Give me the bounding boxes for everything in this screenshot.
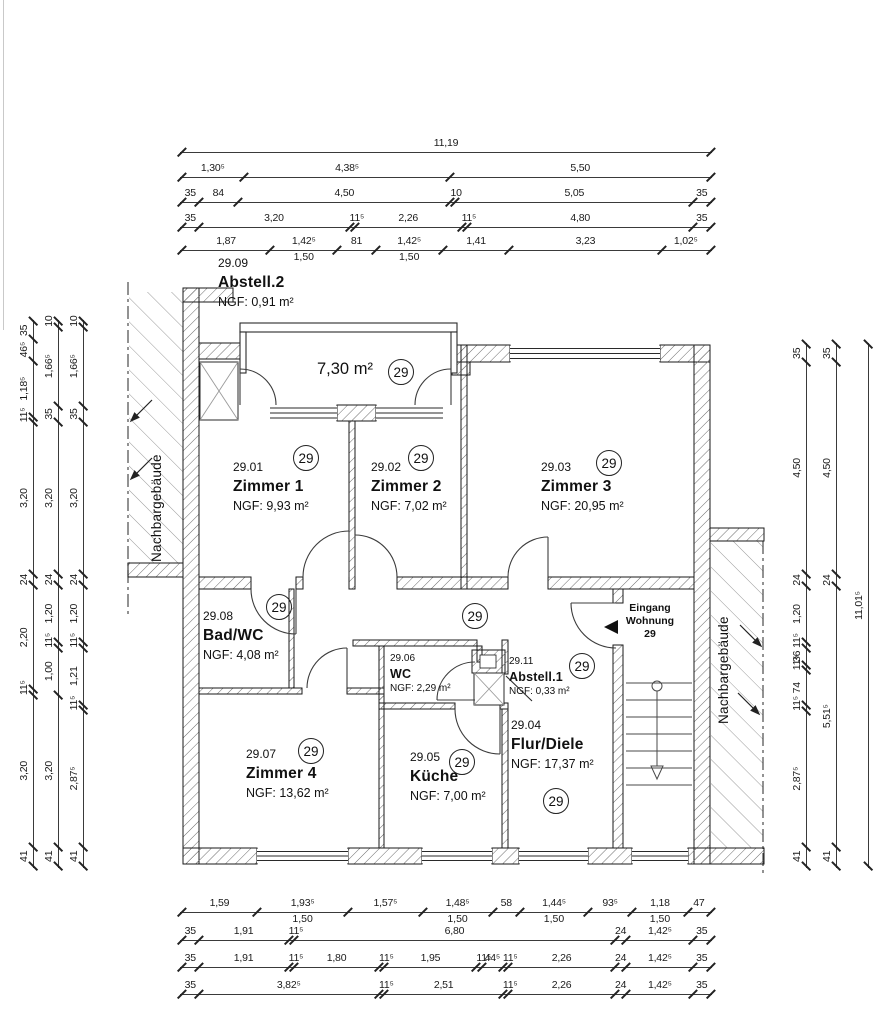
room-area: NGF: 7,02 m² xyxy=(371,499,447,513)
dim-seg: 41 xyxy=(42,847,68,866)
dim-lbl: 3,20 xyxy=(199,212,350,224)
dim-seg: 11,19 xyxy=(182,136,710,162)
dim-lbl: 4,50 xyxy=(821,362,833,575)
dim-seg: 11⁵ xyxy=(790,642,816,647)
dim-seg: 41 xyxy=(820,847,846,866)
dim-seg: 1,48⁵1,50 xyxy=(423,896,493,922)
dim-seg: 1,93⁵1,50 xyxy=(257,896,348,922)
dim-chain-top-2: 1,30⁵4,38⁵5,50 xyxy=(182,161,710,187)
dim-seg: 2,87⁵ xyxy=(790,711,816,847)
entrance-label: Eingang Wohnung 29 xyxy=(620,602,680,641)
dim-seg: 5,50 xyxy=(450,161,710,187)
dim-lbl: 3,82⁵ xyxy=(199,979,379,991)
dim-seg: 11⁵ xyxy=(42,642,68,647)
dim-lbl: 1,20 xyxy=(68,585,80,642)
room-label-abstell2: 29.09 Abstell.2 NGF: 0,91 m² xyxy=(218,257,294,309)
dim-seg: 35 xyxy=(820,345,846,362)
dim-seg: 2,26 xyxy=(508,978,615,1004)
dim-lbl: 3,20 xyxy=(43,695,55,847)
dim-seg: 4,38⁵ xyxy=(244,161,451,187)
dim-lbl: 2,87⁵ xyxy=(791,711,803,847)
dim-seg: 24 xyxy=(42,574,68,585)
dim-seg: 10 xyxy=(42,322,68,327)
dim-seg: 1,20 xyxy=(42,585,68,642)
dim-lbl: 11,19 xyxy=(182,137,710,149)
dim-lbl: 24 xyxy=(821,574,833,585)
dim-lbl: 1,42⁵ xyxy=(626,952,693,964)
room-name: Flur/Diele xyxy=(511,736,594,754)
dim-seg: 35 xyxy=(42,406,68,423)
dim-seg: 1,66⁵ xyxy=(42,327,68,406)
dim-seg: 11⁵ xyxy=(67,642,93,647)
dim-chain-top-3: 35844,50105,0535 xyxy=(182,186,710,212)
dim-seg: 81 xyxy=(337,234,375,260)
room-area: NGF: 0,33 m² xyxy=(509,686,570,698)
dim-chain-bottom-1: 1,591,93⁵1,501,57⁵1,48⁵1,50581,44⁵1,5093… xyxy=(182,896,710,922)
room-number: 29.11 xyxy=(509,656,570,668)
dim-lbl: 24 xyxy=(18,574,30,585)
dim-seg: 46⁵ xyxy=(17,339,43,361)
dim-seg: 35 xyxy=(67,406,93,423)
dim-seg: 1,80 xyxy=(294,951,379,977)
dim-seg: 2,87⁵ xyxy=(67,710,93,846)
room-label-zimmer2: 29.02 Zimmer 2 NGF: 7,02 m² xyxy=(371,461,447,513)
dim-chain-top-total: 11,19 xyxy=(182,136,710,162)
dim-seg: 24 xyxy=(17,574,43,585)
dim-seg: 3,82⁵ xyxy=(199,978,379,1004)
dim-seg: 41 xyxy=(67,847,93,866)
unit-circle-zimmer4: 29 xyxy=(298,738,324,764)
dim-lbl: 1,42⁵ xyxy=(626,979,693,991)
unit-circle-kueche: 29 xyxy=(449,749,475,775)
dim-chain-left-middle: 413,201,0011⁵1,20243,20351,66⁵10 xyxy=(42,322,68,866)
dim-lbl: 2,20 xyxy=(18,585,30,689)
dim-sub: 1,50 xyxy=(376,251,443,263)
dim-lbl: 2,26 xyxy=(508,979,615,991)
dim-seg: 35 xyxy=(790,345,816,362)
dim-seg: 3,23 xyxy=(509,234,661,260)
dim-seg: 1,91 xyxy=(199,951,289,977)
dim-seg: 10 xyxy=(67,322,93,327)
dim-lbl: 1,91 xyxy=(199,952,289,964)
dim-seg: 11⁵ xyxy=(790,665,816,670)
room-name: Zimmer 3 xyxy=(541,478,624,496)
dim-lbl: 1,48⁵ xyxy=(423,897,493,909)
dim-seg: 35 xyxy=(17,322,43,339)
room-label-badwc: 29.08 Bad/WC NGF: 4,08 m² xyxy=(203,610,279,662)
dim-seg: 4,50 xyxy=(790,362,816,575)
dim-lbl: 3,20 xyxy=(18,422,30,574)
chimney-flue xyxy=(480,655,496,668)
dim-seg: 74 xyxy=(790,670,816,705)
dim-lbl: 81 xyxy=(337,235,375,247)
dim-seg: 24 xyxy=(615,951,626,977)
dim-chain-bottom-2: 351,9111⁵6,80241,42⁵35 xyxy=(182,924,710,950)
dim-seg: 24 xyxy=(820,574,846,585)
dim-lbl: 1,44⁵ xyxy=(520,897,588,909)
dim-lbl: 4,80 xyxy=(467,212,693,224)
dim-chain-left-inner: 412,87⁵11⁵1,2111⁵1,20243,20351,66⁵10 xyxy=(67,322,93,866)
dim-seg: 35 xyxy=(693,978,710,1004)
dim-seg: 35 xyxy=(693,186,710,212)
dim-seg: 3,20 xyxy=(67,422,93,574)
dim-lbl: 1,18⁵ xyxy=(18,361,30,417)
dim-seg: 3,20 xyxy=(17,422,43,574)
room-name: WC xyxy=(390,667,451,681)
dim-lbl: 93⁵ xyxy=(588,897,632,909)
room-name: Bad/WC xyxy=(203,627,279,645)
dim-lbl: 1,20 xyxy=(43,585,55,642)
dim-seg: 11,01⁵ xyxy=(852,345,878,866)
dim-seg: 24 xyxy=(790,574,816,585)
dim-seg: 1,00 xyxy=(42,648,68,695)
room-area: NGF: 7,00 m² xyxy=(410,789,486,803)
dim-lbl: 4,50 xyxy=(238,187,450,199)
dim-lbl: 1,41 xyxy=(443,235,510,247)
dim-lbl: 1,18 xyxy=(632,897,688,909)
dim-lbl: 1,66⁵ xyxy=(68,327,80,406)
dim-seg: 1,66⁵ xyxy=(67,327,93,406)
dim-lbl: 35 xyxy=(43,406,55,423)
dim-lbl: 4,38⁵ xyxy=(244,162,451,174)
dim-seg: 41 xyxy=(17,847,43,866)
entrance-arrow-icon xyxy=(604,620,618,634)
dim-chain-bottom-4: 353,82⁵11⁵2,5111⁵2,26241,42⁵35 xyxy=(182,978,710,1004)
dim-lbl: 1,20 xyxy=(791,586,803,643)
dim-seg: 11⁵ xyxy=(17,417,43,422)
dim-seg: 36 xyxy=(790,648,816,665)
room-area: NGF: 2,29 m² xyxy=(390,683,451,695)
floor-plan-page: 11,19 1,30⁵4,38⁵5,50 35844,50105,0535 35… xyxy=(0,0,887,1024)
dim-seg: 1,44⁵1,50 xyxy=(520,896,588,922)
dim-lbl: 2,26 xyxy=(508,952,615,964)
room-label-flur: 29.04 Flur/Diele NGF: 17,37 m² xyxy=(511,719,594,771)
unit-circle-zimmer3: 29 xyxy=(596,450,622,476)
dim-lbl: 24 xyxy=(43,574,55,585)
dim-lbl: 1,87 xyxy=(182,235,270,247)
dim-seg: 35 xyxy=(693,924,710,950)
dim-seg: 44⁵ xyxy=(482,951,503,977)
dim-seg: 2,51 xyxy=(384,978,502,1004)
dim-lbl: 5,50 xyxy=(450,162,710,174)
room-area: NGF: 0,91 m² xyxy=(218,295,294,309)
dim-lbl: 1,30⁵ xyxy=(182,162,244,174)
dim-lbl: 1,02⁵ xyxy=(662,235,710,247)
room-area: NGF: 17,37 m² xyxy=(511,757,594,771)
entrance-line3: 29 xyxy=(620,628,680,641)
dim-seg: 1,18⁵ xyxy=(17,361,43,417)
dim-seg: 1,30⁵ xyxy=(182,161,244,187)
dim-lbl: 84 xyxy=(199,187,239,199)
dim-seg: 1,42⁵ xyxy=(626,924,693,950)
room-number: 29.04 xyxy=(511,719,594,733)
room-name: Zimmer 1 xyxy=(233,478,309,496)
balcony-area-label: 7,30 m² xyxy=(317,360,373,379)
dim-seg: 24 xyxy=(615,978,626,1004)
dim-lbl: 2,87⁵ xyxy=(68,710,80,846)
dim-seg: 5,51⁵ xyxy=(820,586,846,847)
room-area: NGF: 20,95 m² xyxy=(541,499,624,513)
dim-seg: 1,21 xyxy=(67,648,93,705)
dim-lbl: 1,42⁵ xyxy=(626,925,693,937)
dim-chain-bottom-3: 351,9111⁵1,8011⁵1,9511⁵44⁵11⁵2,26241,42⁵… xyxy=(182,951,710,977)
dim-seg: 1,91 xyxy=(199,924,289,950)
dim-seg: 3,20 xyxy=(17,695,43,847)
dim-seg: 6,80 xyxy=(294,924,615,950)
dim-seg: 1,20 xyxy=(67,585,93,642)
dim-lbl: 35 xyxy=(68,406,80,423)
dim-seg: 47 xyxy=(688,896,710,922)
dim-lbl: 24 xyxy=(68,574,80,585)
dim-seg: 11⁵ xyxy=(67,705,93,710)
dim-seg: 35 xyxy=(182,978,199,1004)
dim-lbl: 2,51 xyxy=(384,979,502,991)
dim-seg: 93⁵ xyxy=(588,896,632,922)
dim-seg: 11⁵ xyxy=(790,705,816,710)
neighbor-building-label-right: Nachbargebäude xyxy=(716,616,731,724)
dim-seg: 1,42⁵ xyxy=(626,978,693,1004)
dim-seg: 35 xyxy=(182,186,199,212)
dim-chain-right-total: 11,01⁵ xyxy=(852,345,878,866)
dim-seg: 3,20 xyxy=(42,422,68,574)
room-area: NGF: 9,93 m² xyxy=(233,499,309,513)
room-name: Küche xyxy=(410,768,486,786)
dim-seg: 58 xyxy=(493,896,520,922)
dim-lbl: 1,42⁵ xyxy=(376,235,443,247)
dim-seg: 1,20 xyxy=(790,586,816,643)
unit-circle-badwc: 29 xyxy=(266,594,292,620)
room-area: NGF: 13,62 m² xyxy=(246,786,329,800)
unit-circle-zimmer2: 29 xyxy=(408,445,434,471)
dim-seg: 1,42⁵1,50 xyxy=(376,234,443,260)
dim-lbl: 3,20 xyxy=(43,422,55,574)
dim-lbl: 1,93⁵ xyxy=(257,897,348,909)
dim-lbl: 6,80 xyxy=(294,925,615,937)
dim-seg: 1,41 xyxy=(443,234,510,260)
room-area: NGF: 4,08 m² xyxy=(203,648,279,662)
unit-circle-flur: 29 xyxy=(543,788,569,814)
dim-lbl: 1,57⁵ xyxy=(348,897,422,909)
entrance-line2: Wohnung xyxy=(620,615,680,628)
dim-lbl: 1,42⁵ xyxy=(270,235,337,247)
dim-lbl: 1,80 xyxy=(294,952,379,964)
unit-circle-corridor: 29 xyxy=(462,603,488,629)
dim-seg: 1,59 xyxy=(182,896,257,922)
dim-lbl: 24 xyxy=(791,574,803,585)
room-name: Abstell.1 xyxy=(509,670,570,684)
dim-seg: 35 xyxy=(182,924,199,950)
entrance-line1: Eingang xyxy=(620,602,680,615)
dim-lbl: 2,26 xyxy=(355,212,462,224)
dim-seg: 35 xyxy=(693,951,710,977)
dim-chain-left-outer: 413,2011⁵2,20243,2011⁵1,18⁵46⁵35 xyxy=(17,322,43,866)
unit-circle-zimmer1: 29 xyxy=(293,445,319,471)
dim-seg: 2,26 xyxy=(508,951,615,977)
dim-seg: 4,50 xyxy=(820,362,846,575)
dim-seg: 1,57⁵ xyxy=(348,896,422,922)
dim-lbl: 4,50 xyxy=(791,362,803,575)
room-name: Zimmer 2 xyxy=(371,478,447,496)
dim-lbl: 5,05 xyxy=(455,187,693,199)
dim-lbl: 1,66⁵ xyxy=(43,327,55,406)
dim-lbl: 1,21 xyxy=(68,648,80,705)
dim-seg: 2,20 xyxy=(17,585,43,689)
dim-lbl: 3,23 xyxy=(509,235,661,247)
dim-lbl: 5,51⁵ xyxy=(821,586,833,847)
neighbor-building-label-left: Nachbargebäude xyxy=(149,454,164,562)
dim-seg: 24 xyxy=(615,924,626,950)
dim-seg: 1,181,50 xyxy=(632,896,688,922)
dim-chain-right-middle: 415,51⁵244,5035 xyxy=(820,345,846,866)
room-label-abstell1: 29.11 Abstell.1 NGF: 0,33 m² xyxy=(509,656,570,697)
unit-circle-balcony: 29 xyxy=(388,359,414,385)
dim-lbl: 3,20 xyxy=(18,695,30,847)
room-number: 29.06 xyxy=(390,653,451,665)
dim-lbl: 1,00 xyxy=(43,648,55,695)
dim-seg: 35 xyxy=(182,951,199,977)
dim-seg: 24 xyxy=(67,574,93,585)
dim-seg: 3,20 xyxy=(42,695,68,847)
room-label-zimmer1: 29.01 Zimmer 1 NGF: 9,93 m² xyxy=(233,461,309,513)
dim-seg: 41 xyxy=(790,847,816,866)
dim-lbl: 1,91 xyxy=(199,925,289,937)
dim-seg: 11⁵ xyxy=(17,690,43,695)
room-label-wc: 29.06 WC NGF: 2,29 m² xyxy=(390,653,451,694)
staircase xyxy=(626,681,692,785)
room-name: Abstell.2 xyxy=(218,274,294,292)
unit-circle-abstell1: 29 xyxy=(569,653,595,679)
dim-seg: 4,50 xyxy=(238,186,450,212)
dim-seg: 1,02⁵ xyxy=(662,234,710,260)
room-name: Zimmer 4 xyxy=(246,765,329,783)
dim-seg: 1,95 xyxy=(384,951,476,977)
dim-lbl: 1,95 xyxy=(384,952,476,964)
dim-chain-right-inner: 412,87⁵11⁵7411⁵3611⁵1,20244,5035 xyxy=(790,345,816,866)
dim-seg: 1,42⁵ xyxy=(626,951,693,977)
dim-lbl: 3,20 xyxy=(68,422,80,574)
dim-lbl: 1,59 xyxy=(182,897,257,909)
dim-lbl: 11,01⁵ xyxy=(853,345,865,866)
room-number: 29.09 xyxy=(218,257,294,271)
dim-seg: 5,05 xyxy=(455,186,693,212)
dim-seg: 84 xyxy=(199,186,239,212)
